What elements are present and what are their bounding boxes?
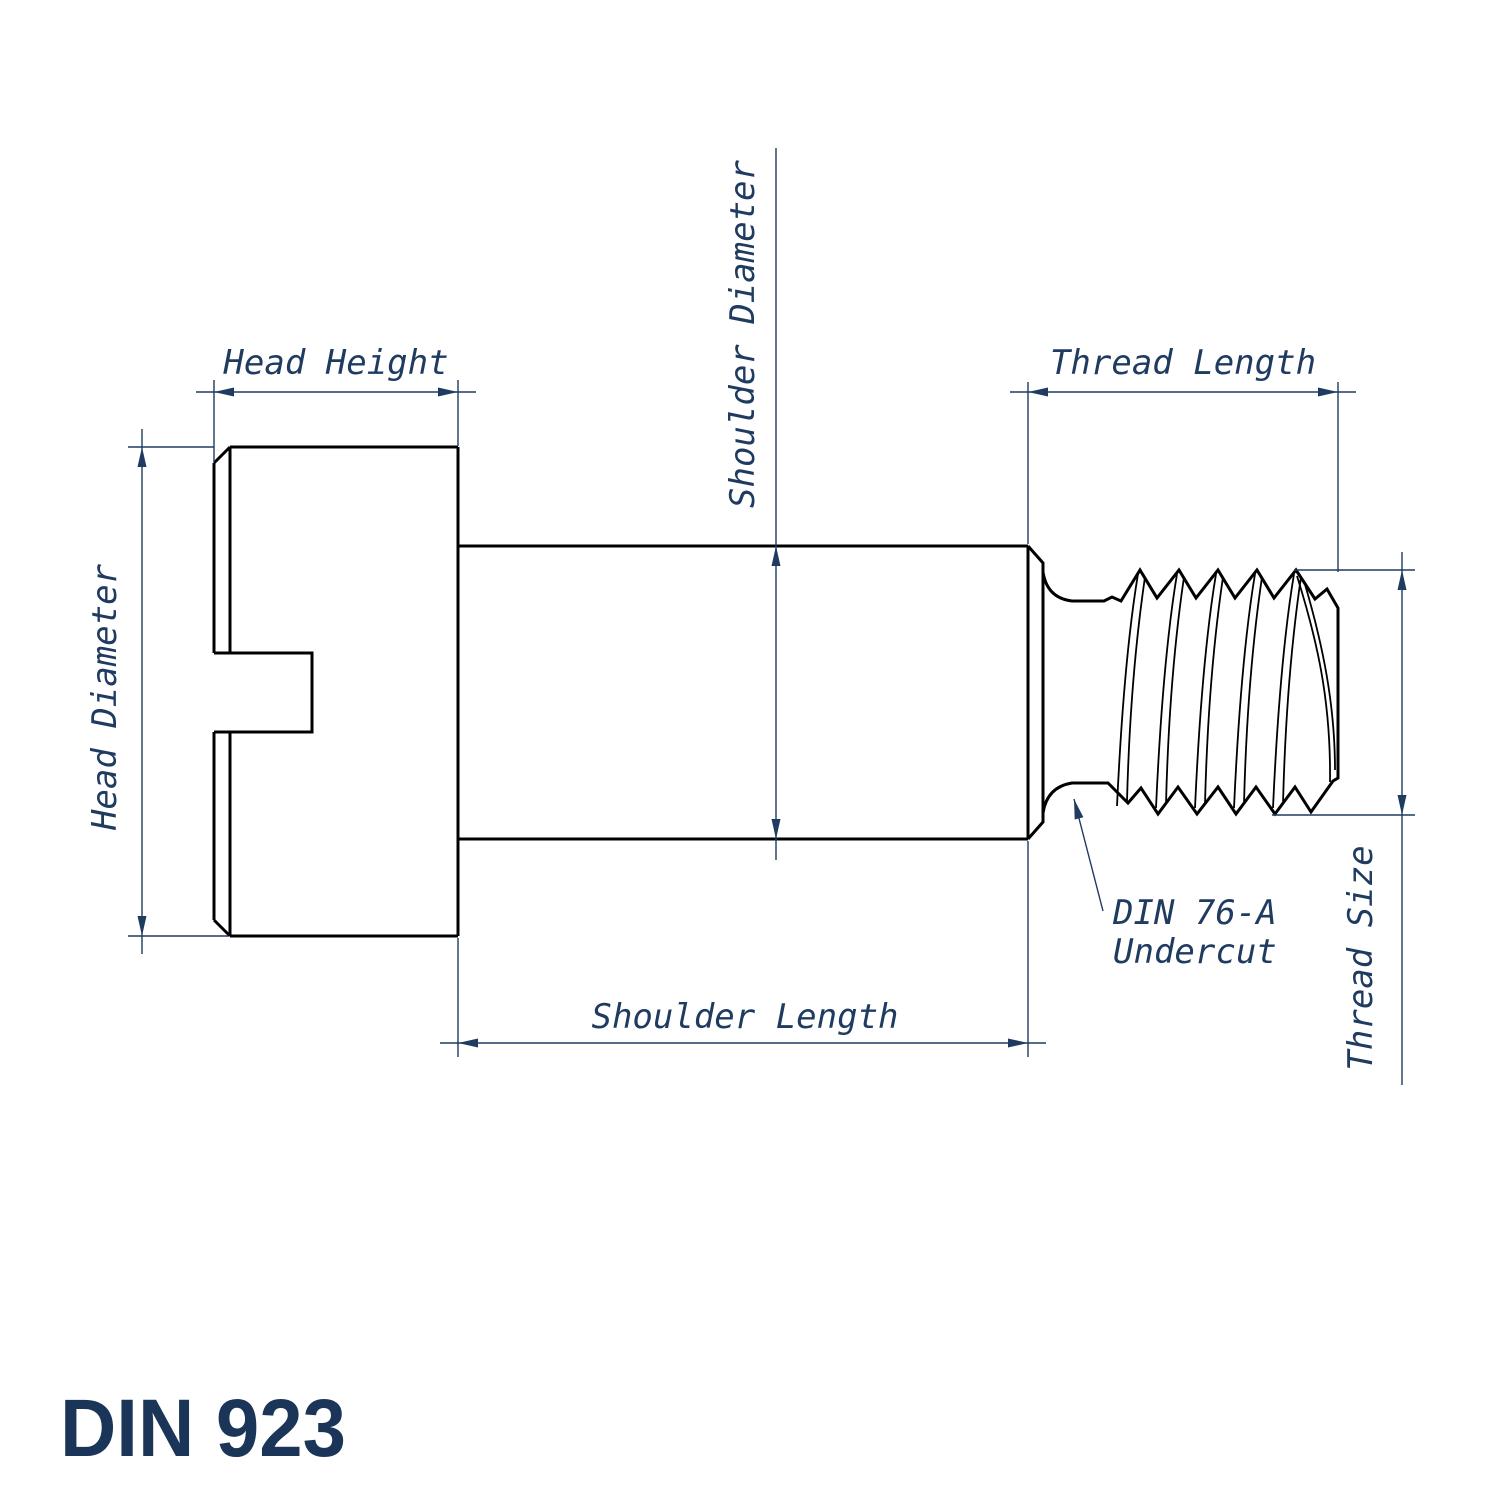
undercut-label-line1: DIN 76-A [1112, 893, 1277, 933]
arrow-head-height-right [438, 388, 458, 397]
thread-length-label: Thread Length [1050, 343, 1316, 383]
thread-runout-line [1304, 581, 1335, 770]
arrow-thread-length-left [1028, 388, 1048, 397]
shoulder-length-label: Shoulder Length [591, 997, 898, 1037]
thread-helix-lines [1117, 574, 1335, 808]
helix-line [1205, 577, 1223, 804]
drawing-canvas: Head Height Thread Length Shoulder Lengt… [0, 0, 1505, 1500]
thread-profile-outline [1043, 570, 1338, 814]
arrow-shoulder-length-right [1008, 1039, 1028, 1048]
helix-line [1166, 577, 1184, 804]
arrow-thread-size-bottom [1398, 795, 1407, 815]
dimension-labels: Head Height Thread Length Shoulder Lengt… [85, 159, 1381, 1070]
screw-shoulder-outline [458, 546, 1043, 839]
arrow-undercut-leader [1074, 799, 1083, 820]
arrow-thread-size-top [1398, 570, 1407, 590]
undercut-label-line2: Undercut [1113, 932, 1277, 972]
arrow-head-diameter-top [138, 447, 147, 467]
helix-line [1244, 577, 1262, 804]
arrow-shoulder-length-left [458, 1039, 478, 1048]
head-diameter-label: Head Diameter [85, 563, 125, 831]
drawing-title: DIN 923 [60, 1383, 346, 1474]
arrow-head-diameter-bottom [138, 916, 147, 936]
thread-runout-line [1297, 576, 1330, 782]
din-923-technical-drawing: Head Height Thread Length Shoulder Lengt… [0, 0, 1505, 1500]
helix-line [1127, 577, 1145, 801]
screw-head-outline [214, 447, 458, 936]
thread-size-label: Thread Size [1341, 845, 1381, 1070]
head-height-label: Head Height [222, 343, 448, 383]
thread-length-dimension-line [1010, 382, 1356, 572]
helix-line [1283, 577, 1301, 804]
arrow-thread-length-right [1318, 388, 1338, 397]
arrow-head-height-left [214, 388, 234, 397]
arrow-shoulder-diameter-bottom [772, 819, 781, 839]
head-height-dimension-line [196, 380, 476, 462]
shoulder-diameter-label: Shoulder Diameter [723, 159, 763, 508]
arrow-shoulder-diameter-top [772, 546, 781, 566]
